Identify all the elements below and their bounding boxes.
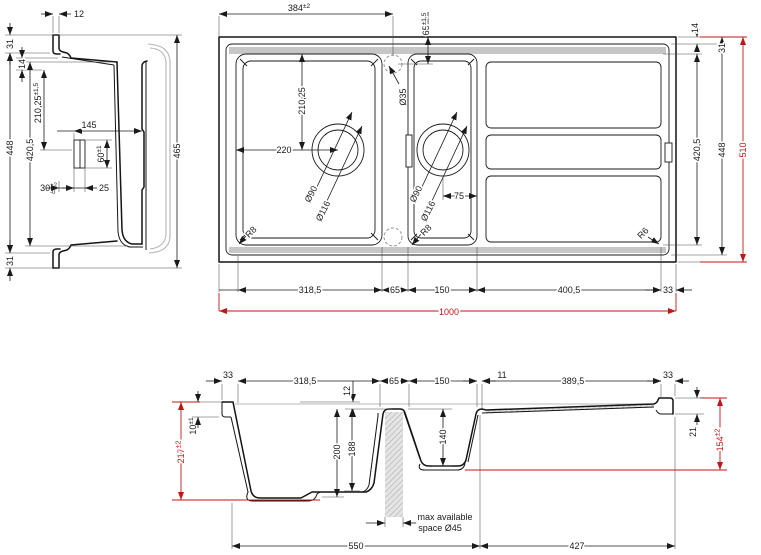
- dim-label-depth-edge: 188: [347, 441, 357, 456]
- longitudinal-section-view: 33 318,5 12 65 150 11 389,5 33 10±1 217±…: [172, 370, 727, 551]
- dim-label-depth-center: 200: [332, 444, 342, 459]
- dim-label-tap-from-left: 384±2: [288, 3, 311, 13]
- dim-label-drainboard-width: 400,5: [558, 285, 581, 295]
- dim-label-lip-width: 12: [74, 9, 84, 19]
- ghost-outline: [148, 44, 170, 253]
- note-max-space-line2: space Ø45: [418, 523, 462, 533]
- dim-label-flange-height: 448: [5, 140, 15, 155]
- dim-label-small-bowl-width: 150: [434, 285, 449, 295]
- plan-view: 384±2 65±1,5 Ø35 14 31 420,5 448 510 210…: [219, 3, 748, 317]
- main-bowl-opening: [236, 54, 382, 245]
- dim-label-overall-width: 510: [738, 142, 748, 157]
- dim-label-overall-height: 465: [172, 143, 182, 158]
- side-profile-top-lip: [53, 35, 117, 62]
- dim-label-bottom-flange: 31: [5, 256, 15, 266]
- dim-label-deck-step: 14: [17, 59, 27, 69]
- section-left-lip: [222, 402, 231, 417]
- dim-label-edge-height: 21: [688, 427, 698, 437]
- side-profile-bottom-lip: [53, 241, 117, 268]
- dim-label-overflow-height: 60±1: [96, 145, 106, 163]
- overflow-knockout: [74, 140, 85, 168]
- small-bowl-overflow-slot: [406, 135, 412, 167]
- dim-label-main-width: 318,5: [294, 376, 317, 386]
- dim-label-divider: 65: [389, 376, 399, 386]
- dim-label-overall-length: 1000: [439, 307, 459, 317]
- dim-label-bowls-length: 420,5: [692, 139, 702, 162]
- technical-drawing-page: 12 31 14 210,25±1,5 448 420,5 145 60±1 2…: [0, 0, 761, 555]
- section-top-surface: [222, 398, 673, 498]
- dim-label-inner-length: 448: [717, 142, 727, 157]
- section-divider-inner-right: [404, 412, 420, 459]
- dim-label-bowls-span: 550: [348, 541, 363, 551]
- dim-label-small-drain-right: 75: [454, 191, 464, 201]
- dim-label-top-flange: 31: [5, 39, 15, 49]
- dim-label-main-bowl-width: 318,5: [299, 285, 322, 295]
- dim-label-gap: 11: [497, 370, 506, 380]
- dim-label-right-margin: 33: [663, 370, 673, 380]
- dim-label-end-depth: 154±2: [715, 429, 726, 452]
- drainboard-panel: [486, 62, 661, 128]
- dim-label-overflow-wall: 145: [81, 120, 96, 130]
- dim-label-drain-from-left: 220: [276, 145, 291, 155]
- dim-label-overflow-offset: 30+2-0: [40, 183, 58, 196]
- dim-label-overflow-width: 25: [99, 183, 109, 193]
- tap-hole-leader: [389, 66, 399, 84]
- dim-label-small-depth: 140: [438, 429, 448, 444]
- dim-label-drainboard-span: 427: [569, 541, 584, 551]
- tap-hole-knockout: [384, 228, 402, 246]
- ghost-outline-inner: [150, 48, 166, 249]
- dim-label-bowl-center: 210,25±1,5: [33, 83, 43, 124]
- dim-label-left-margin: 33: [223, 370, 233, 380]
- dim-label-small-width: 150: [434, 376, 449, 386]
- dim-label-drain-from-top: 210,25: [297, 87, 307, 115]
- section-small-bowl-wall-inner: [468, 415, 478, 462]
- small-bowl-opening: [408, 54, 477, 245]
- dim-label-rim-width: 14: [690, 23, 700, 33]
- side-profile-bowl-wall: [117, 62, 142, 244]
- rim-shading-top: [229, 47, 666, 54]
- dim-label-rim-step: 12: [342, 386, 352, 396]
- dim-label-drainboard: 389,5: [562, 376, 585, 386]
- dim-label-overall-depth: 217±2: [176, 441, 187, 464]
- note-max-space-line1: max available: [417, 512, 472, 522]
- waste-space-hatch: [385, 412, 403, 517]
- drainboard-panel: [486, 135, 661, 169]
- dim-label-edge-margin: 33: [663, 285, 673, 295]
- rim-shading-bottom: [229, 247, 666, 253]
- side-section-view: 12 31 14 210,25±1,5 448 420,5 145 60±1 2…: [5, 9, 182, 281]
- dim-label-tap-from-edge: 65±1,5: [421, 12, 431, 35]
- dim-label-divider-width: 65: [390, 285, 400, 295]
- rim-overflow-slot: [665, 143, 672, 162]
- dim-label-deck-width: 31: [717, 43, 727, 53]
- dim-label-inner-height: 420,5: [25, 139, 35, 162]
- drainboard-panel: [486, 176, 661, 242]
- section-right-lip-underside: [656, 410, 673, 414]
- dim-label-tap-diameter: Ø35: [398, 88, 408, 105]
- sink-technical-drawing: 12 31 14 210,25±1,5 448 420,5 145 60±1 2…: [0, 0, 761, 555]
- dim-label-lip-height: 10±1: [188, 417, 198, 435]
